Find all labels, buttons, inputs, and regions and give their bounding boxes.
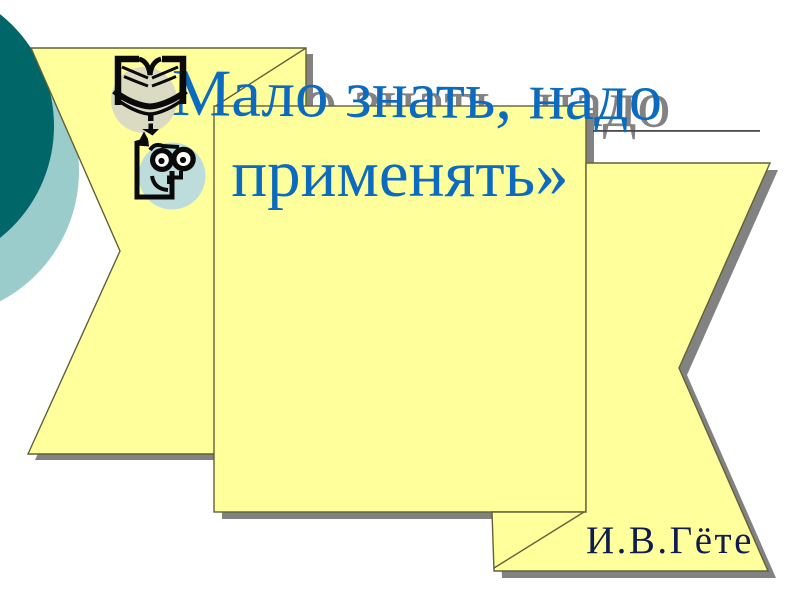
svg-text:«Мало знать, надо: «Мало знать, надо bbox=[138, 56, 663, 135]
svg-text:И.В.Гёте: И.В.Гёте bbox=[586, 519, 754, 562]
svg-text:применять»: применять» bbox=[231, 137, 568, 211]
